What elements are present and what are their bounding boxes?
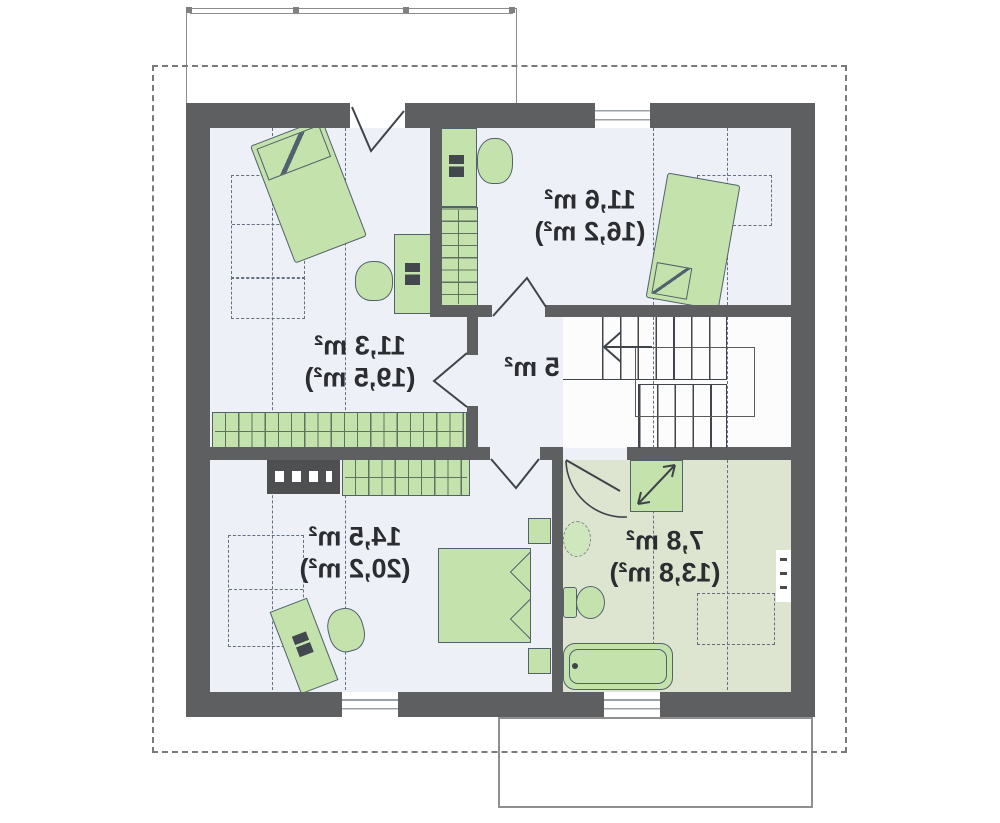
roof-eaves-outline [152, 65, 847, 753]
railing-post [293, 7, 299, 13]
railing-post [509, 7, 515, 13]
floor-plan-canvas: 11,3 m² (19,5 m²) 11,6 m² (16,2 m²) 5 m²… [0, 0, 1000, 823]
railing-post [186, 7, 192, 13]
balcony-railing [190, 13, 513, 14]
railing-post [403, 7, 409, 13]
